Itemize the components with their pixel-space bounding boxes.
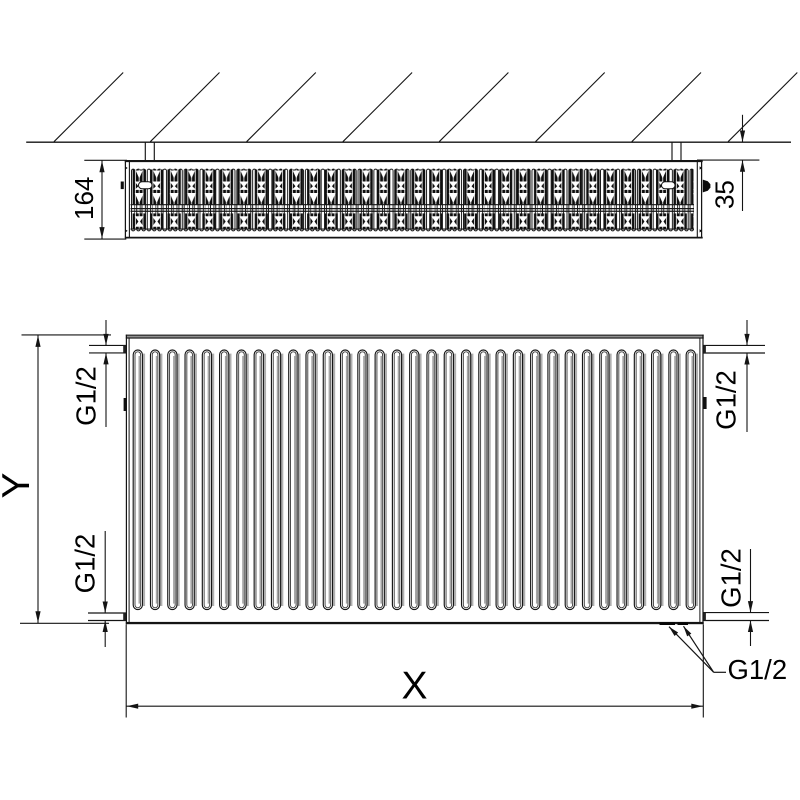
svg-text:164: 164 [69,177,99,220]
svg-text:G1/2: G1/2 [71,366,102,426]
svg-text:X: X [401,665,427,708]
svg-text:Y: Y [0,472,38,498]
svg-text:G1/2: G1/2 [728,654,788,685]
svg-text:G1/2: G1/2 [716,548,747,608]
svg-text:35: 35 [709,180,739,209]
svg-text:G1/2: G1/2 [70,534,101,594]
svg-text:G1/2: G1/2 [711,370,742,430]
